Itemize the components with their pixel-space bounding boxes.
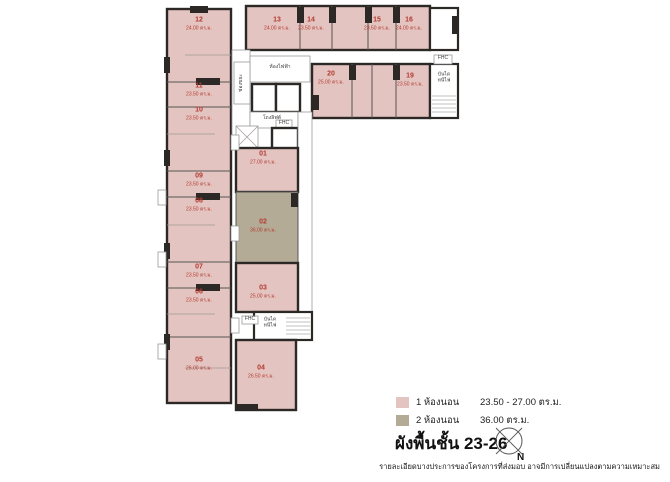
unit-02-room (236, 192, 298, 263)
legend-item-1bed: 1 ห้องนอน 23.50 - 27.00 ตร.ม. (396, 393, 561, 411)
lift-shaft-2 (276, 84, 300, 112)
fhc-label-bottom: FHC (245, 317, 255, 323)
right-corridor (298, 112, 312, 340)
fire-stair-label-right: บันได หนีไฟ (438, 72, 451, 84)
left-wing (167, 9, 231, 403)
unit-04-room (236, 340, 296, 410)
lift-shaft-3 (272, 128, 298, 150)
unit-01-room (236, 148, 298, 192)
one-bed-swatch (396, 397, 409, 408)
compass-icon (486, 420, 532, 466)
lift-shaft-1 (252, 84, 276, 112)
disclaimer-text: รายละเอียดบางประการของโครงการที่ส่งมอบ อ… (379, 461, 660, 473)
legend: 1 ห้องนอน 23.50 - 27.00 ตร.ม. 2 ห้องนอน … (396, 393, 561, 429)
legend-label-2bed: 2 ห้องนอน (416, 413, 472, 428)
two-bed-swatch (396, 415, 409, 426)
electrical-room-label: ห้องไฟฟ้า (269, 65, 290, 71)
floor-plan-page: 0127.00 ตร.ม.0236.00 ตร.ม.0325.00 ตร.ม.0… (0, 0, 670, 482)
fhc-label-top: FHC (438, 56, 448, 62)
garbage-chute-label: ช่องขยะ (239, 74, 245, 92)
floor-plan-drawing (0, 0, 670, 482)
top-wing (246, 6, 430, 50)
legend-value-1bed: 23.50 - 27.00 ตร.ม. (480, 395, 561, 410)
legend-item-2bed: 2 ห้องนอน 36.00 ตร.ม. (396, 411, 561, 429)
legend-label-1bed: 1 ห้องนอน (416, 395, 472, 410)
fire-stair-label-bottom: บันได หนีไฟ (264, 317, 277, 329)
unit-03-room (236, 263, 298, 312)
middle-wing (312, 64, 430, 118)
fhc-label-core: FHC (279, 121, 289, 127)
